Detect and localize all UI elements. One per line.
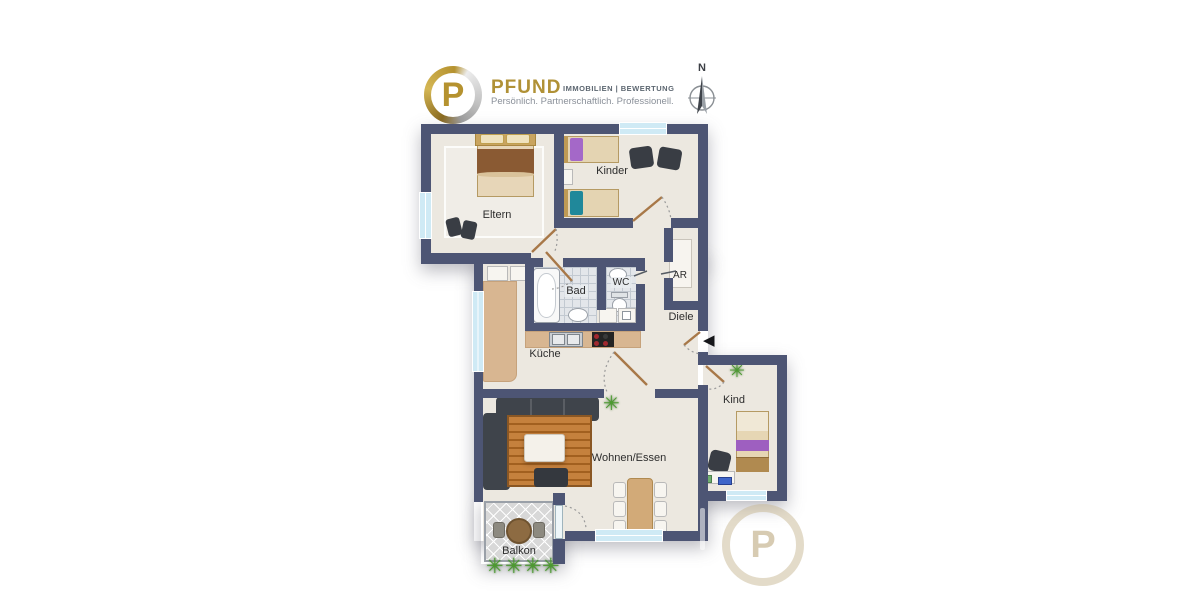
balcony-door <box>555 505 563 539</box>
plant-icon: ✳ <box>603 394 620 414</box>
washing-machine-door <box>622 311 631 320</box>
floorplan-page: P PFUND IMMOBILIEN | BEWERTUNG Persönlic… <box>0 0 1200 600</box>
stove-burner <box>594 341 599 346</box>
dining-chair <box>613 501 626 517</box>
room-label-ar: AR <box>673 270 687 281</box>
pfund-logo-inner: P <box>431 73 475 117</box>
wall <box>553 539 565 564</box>
wall <box>554 218 633 228</box>
window <box>726 490 767 501</box>
coffee-table <box>524 434 565 462</box>
wall <box>698 310 708 331</box>
desk-chair <box>629 146 655 170</box>
stove-burner <box>603 334 608 339</box>
compass-north-label: N <box>687 62 717 74</box>
dining-chair <box>654 501 667 517</box>
wall <box>698 124 708 228</box>
stove-burner <box>594 334 599 339</box>
dining-chair <box>613 482 626 498</box>
balcony-table <box>506 518 532 544</box>
bed-blanket-fold <box>477 172 534 177</box>
wall <box>777 355 787 501</box>
bed-pillow <box>480 134 504 144</box>
bed-pillow <box>570 191 583 215</box>
desk-item-blue <box>718 477 732 485</box>
kitchen-counter-left <box>483 281 517 382</box>
bed-pillow <box>570 138 583 161</box>
room-label-kind: Kind <box>723 394 745 406</box>
dining-chair <box>654 482 667 498</box>
wall <box>553 493 565 505</box>
bed-pillow <box>506 134 530 144</box>
wall <box>525 323 645 331</box>
wall <box>664 228 673 262</box>
appliance <box>599 308 617 323</box>
bath-sink <box>568 308 588 322</box>
room-label-diele: Diele <box>668 311 693 323</box>
wall <box>525 258 534 331</box>
balcony-chair <box>493 522 505 538</box>
balcony-chair <box>533 522 545 538</box>
wall <box>636 284 645 323</box>
wall <box>474 389 604 398</box>
plant-icon: ✳ <box>505 556 523 577</box>
wall <box>698 355 787 365</box>
ottoman <box>534 468 568 487</box>
watermark-logo-letter: P <box>750 526 775 564</box>
single-bed <box>559 189 619 217</box>
window <box>595 529 663 542</box>
wall <box>671 218 708 228</box>
plant-icon: ✳ <box>524 556 542 577</box>
bathtub-basin <box>537 273 556 318</box>
room-label-bad: Bad <box>564 285 588 297</box>
wall <box>597 262 606 310</box>
window <box>419 192 432 239</box>
brand-division: IMMOBILIEN | BEWERTUNG <box>563 84 674 93</box>
kind-bed-headboard <box>736 457 769 472</box>
kitchen-counter-top <box>525 331 641 348</box>
wall <box>554 134 564 228</box>
kind-bed-blanket <box>736 440 769 451</box>
wall <box>636 258 645 271</box>
kitchen-cabinet <box>487 266 508 281</box>
single-bed <box>559 136 619 163</box>
room-label-wohnen-essen: Wohnen/Essen <box>592 452 666 464</box>
sofa-chaise <box>483 413 510 490</box>
wall <box>698 228 708 310</box>
plant-icon: ✳ <box>486 556 504 577</box>
wall <box>664 301 708 310</box>
stove-burner <box>603 341 608 346</box>
pfund-logo-letter: P <box>442 78 465 112</box>
vertical-watermark <box>700 508 705 550</box>
kitchen-sink-basin <box>567 334 580 345</box>
kitchen-sink-basin <box>552 334 565 345</box>
wall <box>655 389 708 398</box>
pfund-logo-icon: P <box>424 66 482 124</box>
brand-tagline: Persönlich. Partnerschaftlich. Professio… <box>491 96 674 107</box>
room-label-wc: WC <box>611 277 632 288</box>
room-label-kinder: Kinder <box>596 165 628 177</box>
compass-icon <box>687 74 717 120</box>
room-label-eltern: Eltern <box>483 209 512 221</box>
room-label-balkon: Balkon <box>502 545 536 557</box>
window <box>619 122 667 135</box>
room-label-kueche: Küche <box>529 348 560 360</box>
entrance-arrow-icon: ◀ <box>703 333 715 348</box>
kind-bed-sheet <box>737 412 768 431</box>
watermark-logo-icon: P <box>722 504 804 586</box>
desk-chair <box>656 146 682 171</box>
window <box>472 291 484 372</box>
